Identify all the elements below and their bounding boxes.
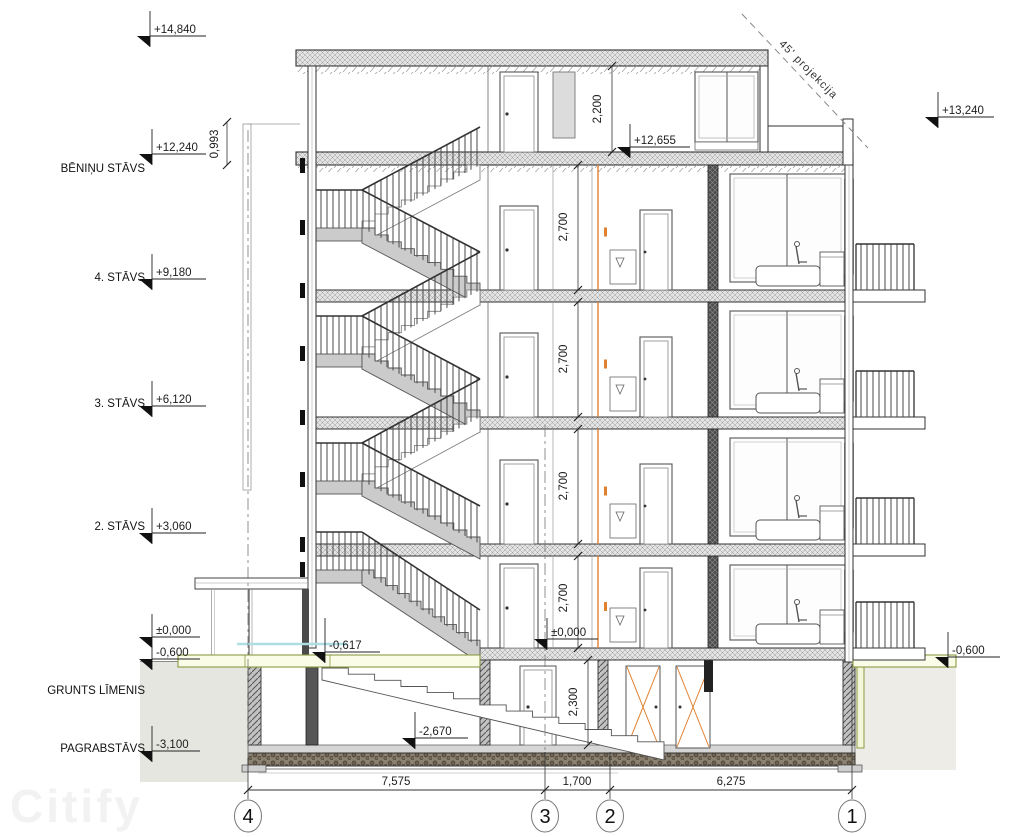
balcony-railing (856, 602, 914, 648)
bathtub (756, 624, 820, 644)
label-floor3: 3. STĀVS (95, 398, 146, 410)
balcony-slab (853, 290, 925, 302)
balcony-railing (856, 498, 914, 544)
watermark-logo: Citify (10, 780, 143, 832)
basement-wall-mid (480, 648, 490, 745)
basement-wall-left (248, 660, 261, 745)
attic-window-large (695, 72, 758, 150)
attic-interior (488, 66, 853, 165)
balcony-slab (853, 648, 925, 660)
label-floor2: 2. STĀVS (95, 521, 146, 533)
dim-basement-height: 2,300 (568, 688, 580, 717)
dim-floor3-height: 2,700 (558, 345, 570, 374)
footing-right (838, 765, 862, 772)
building-section-svg: 45' projekcija 0,993 2,200 2,700 2,700 2… (0, 0, 1024, 837)
footing-left (242, 765, 266, 772)
basement-duct (704, 656, 713, 692)
marker-roof-top: +14,840 (137, 11, 206, 47)
basement-gravel-slab (248, 753, 855, 766)
svg-text:+9,180: +9,180 (156, 267, 192, 279)
svg-text:2: 2 (604, 806, 615, 828)
marker-basement-stair: -2,670 (402, 712, 468, 749)
svg-text:+6,120: +6,120 (156, 394, 192, 406)
marker-zero-left: ±0,000 (139, 614, 200, 648)
balcony-slab (853, 417, 925, 429)
svg-text:+14,840: +14,840 (154, 24, 196, 36)
basement-wall-right (843, 660, 855, 745)
projection-note: 45' projekcija (776, 38, 840, 102)
marker-floor3-level: +6,120 (139, 381, 206, 417)
marker-floor4-level: +9,180 (139, 254, 206, 290)
svg-text:+3,060: +3,060 (156, 521, 192, 533)
svg-text:-0,617: -0,617 (329, 640, 362, 652)
bathtub (756, 266, 820, 286)
dim-span-3-2: 1,700 (563, 776, 592, 788)
grid-bubble-3: 3 (532, 800, 559, 832)
marker-attic-level: +12,240 (139, 129, 206, 165)
attic-floor-slab (296, 152, 853, 165)
svg-text:+12,240: +12,240 (156, 142, 198, 154)
marker-zero-interior: ±0,000 (534, 618, 598, 650)
grid-bubble-4: 4 (235, 800, 262, 832)
balcony-railing (856, 371, 914, 417)
floor-name-labels: BĒNIŅU STĀVS 4. STĀVS 3. STĀVS 2. STĀVS … (47, 163, 145, 755)
label-ground-level: GRUNTS LĪMENIS (47, 685, 145, 697)
dim-parapet: 0,993 (209, 130, 221, 159)
wc-fixture (610, 608, 636, 642)
marker-parapet-right: +13,240 (925, 92, 994, 128)
drainage-board (857, 666, 864, 748)
attic-window-small (553, 72, 575, 138)
party-wall (708, 556, 718, 648)
dim-span-4-3: 7,575 (382, 776, 411, 788)
svg-text:-0,600: -0,600 (156, 647, 189, 659)
balcony-slab (853, 544, 925, 556)
svg-text:-3,100: -3,100 (156, 739, 189, 751)
party-wall (708, 429, 718, 544)
wc-fixture (610, 377, 636, 411)
label-attic: BĒNIŅU STĀVS (61, 163, 146, 175)
ground-floor-slab (480, 648, 853, 660)
wall-section-marks (300, 158, 305, 577)
label-basement: PAGRABSTĀVS (60, 743, 145, 755)
marker-floor2-level: +3,060 (139, 508, 206, 544)
section-drawing-canvas: 45' projekcija 0,993 2,200 2,700 2,700 2… (0, 0, 1024, 837)
svg-text:-2,670: -2,670 (419, 726, 452, 738)
svg-text:+12,655: +12,655 (634, 135, 676, 147)
entrance-canopy (195, 578, 308, 589)
attic-wall-right (760, 66, 768, 152)
marker-minus600-right: -0,600 (935, 632, 1000, 668)
svg-text:-0,600: -0,600 (952, 645, 985, 657)
dim-attic-height: 2,200 (592, 95, 604, 124)
balcony-railing (856, 244, 914, 290)
floor-interiors (488, 165, 854, 648)
svg-text:+13,240: +13,240 (942, 105, 984, 117)
terrace-parapet (843, 119, 853, 165)
svg-text:±0,000: ±0,000 (551, 627, 586, 639)
party-wall (708, 302, 718, 417)
dim-floor4-height: 2,700 (558, 213, 570, 242)
stairwell (308, 127, 480, 663)
bathtub (756, 520, 820, 540)
svg-text:1: 1 (846, 806, 857, 828)
grid-bubble-1: 1 (839, 800, 866, 832)
svg-text:4: 4 (242, 806, 253, 828)
dim-span-2-1: 6,275 (717, 776, 746, 788)
svg-text:±0,000: ±0,000 (156, 625, 191, 637)
basement-pier (306, 660, 318, 745)
attic-door (500, 72, 538, 152)
party-wall (708, 165, 718, 290)
balconies (853, 244, 925, 660)
grid-bubble-2: 2 (597, 800, 624, 832)
svg-text:3: 3 (539, 806, 550, 828)
wc-fixture (610, 504, 636, 538)
entrance (195, 578, 347, 655)
wc-fixture (610, 250, 636, 284)
label-floor4: 4. STĀVS (95, 272, 146, 284)
dim-floor1-height: 2,700 (558, 584, 570, 613)
basement-screed (248, 745, 855, 753)
bathtub (756, 393, 820, 413)
dim-floor2-height: 2,700 (558, 472, 570, 501)
roof-slab (296, 50, 768, 66)
